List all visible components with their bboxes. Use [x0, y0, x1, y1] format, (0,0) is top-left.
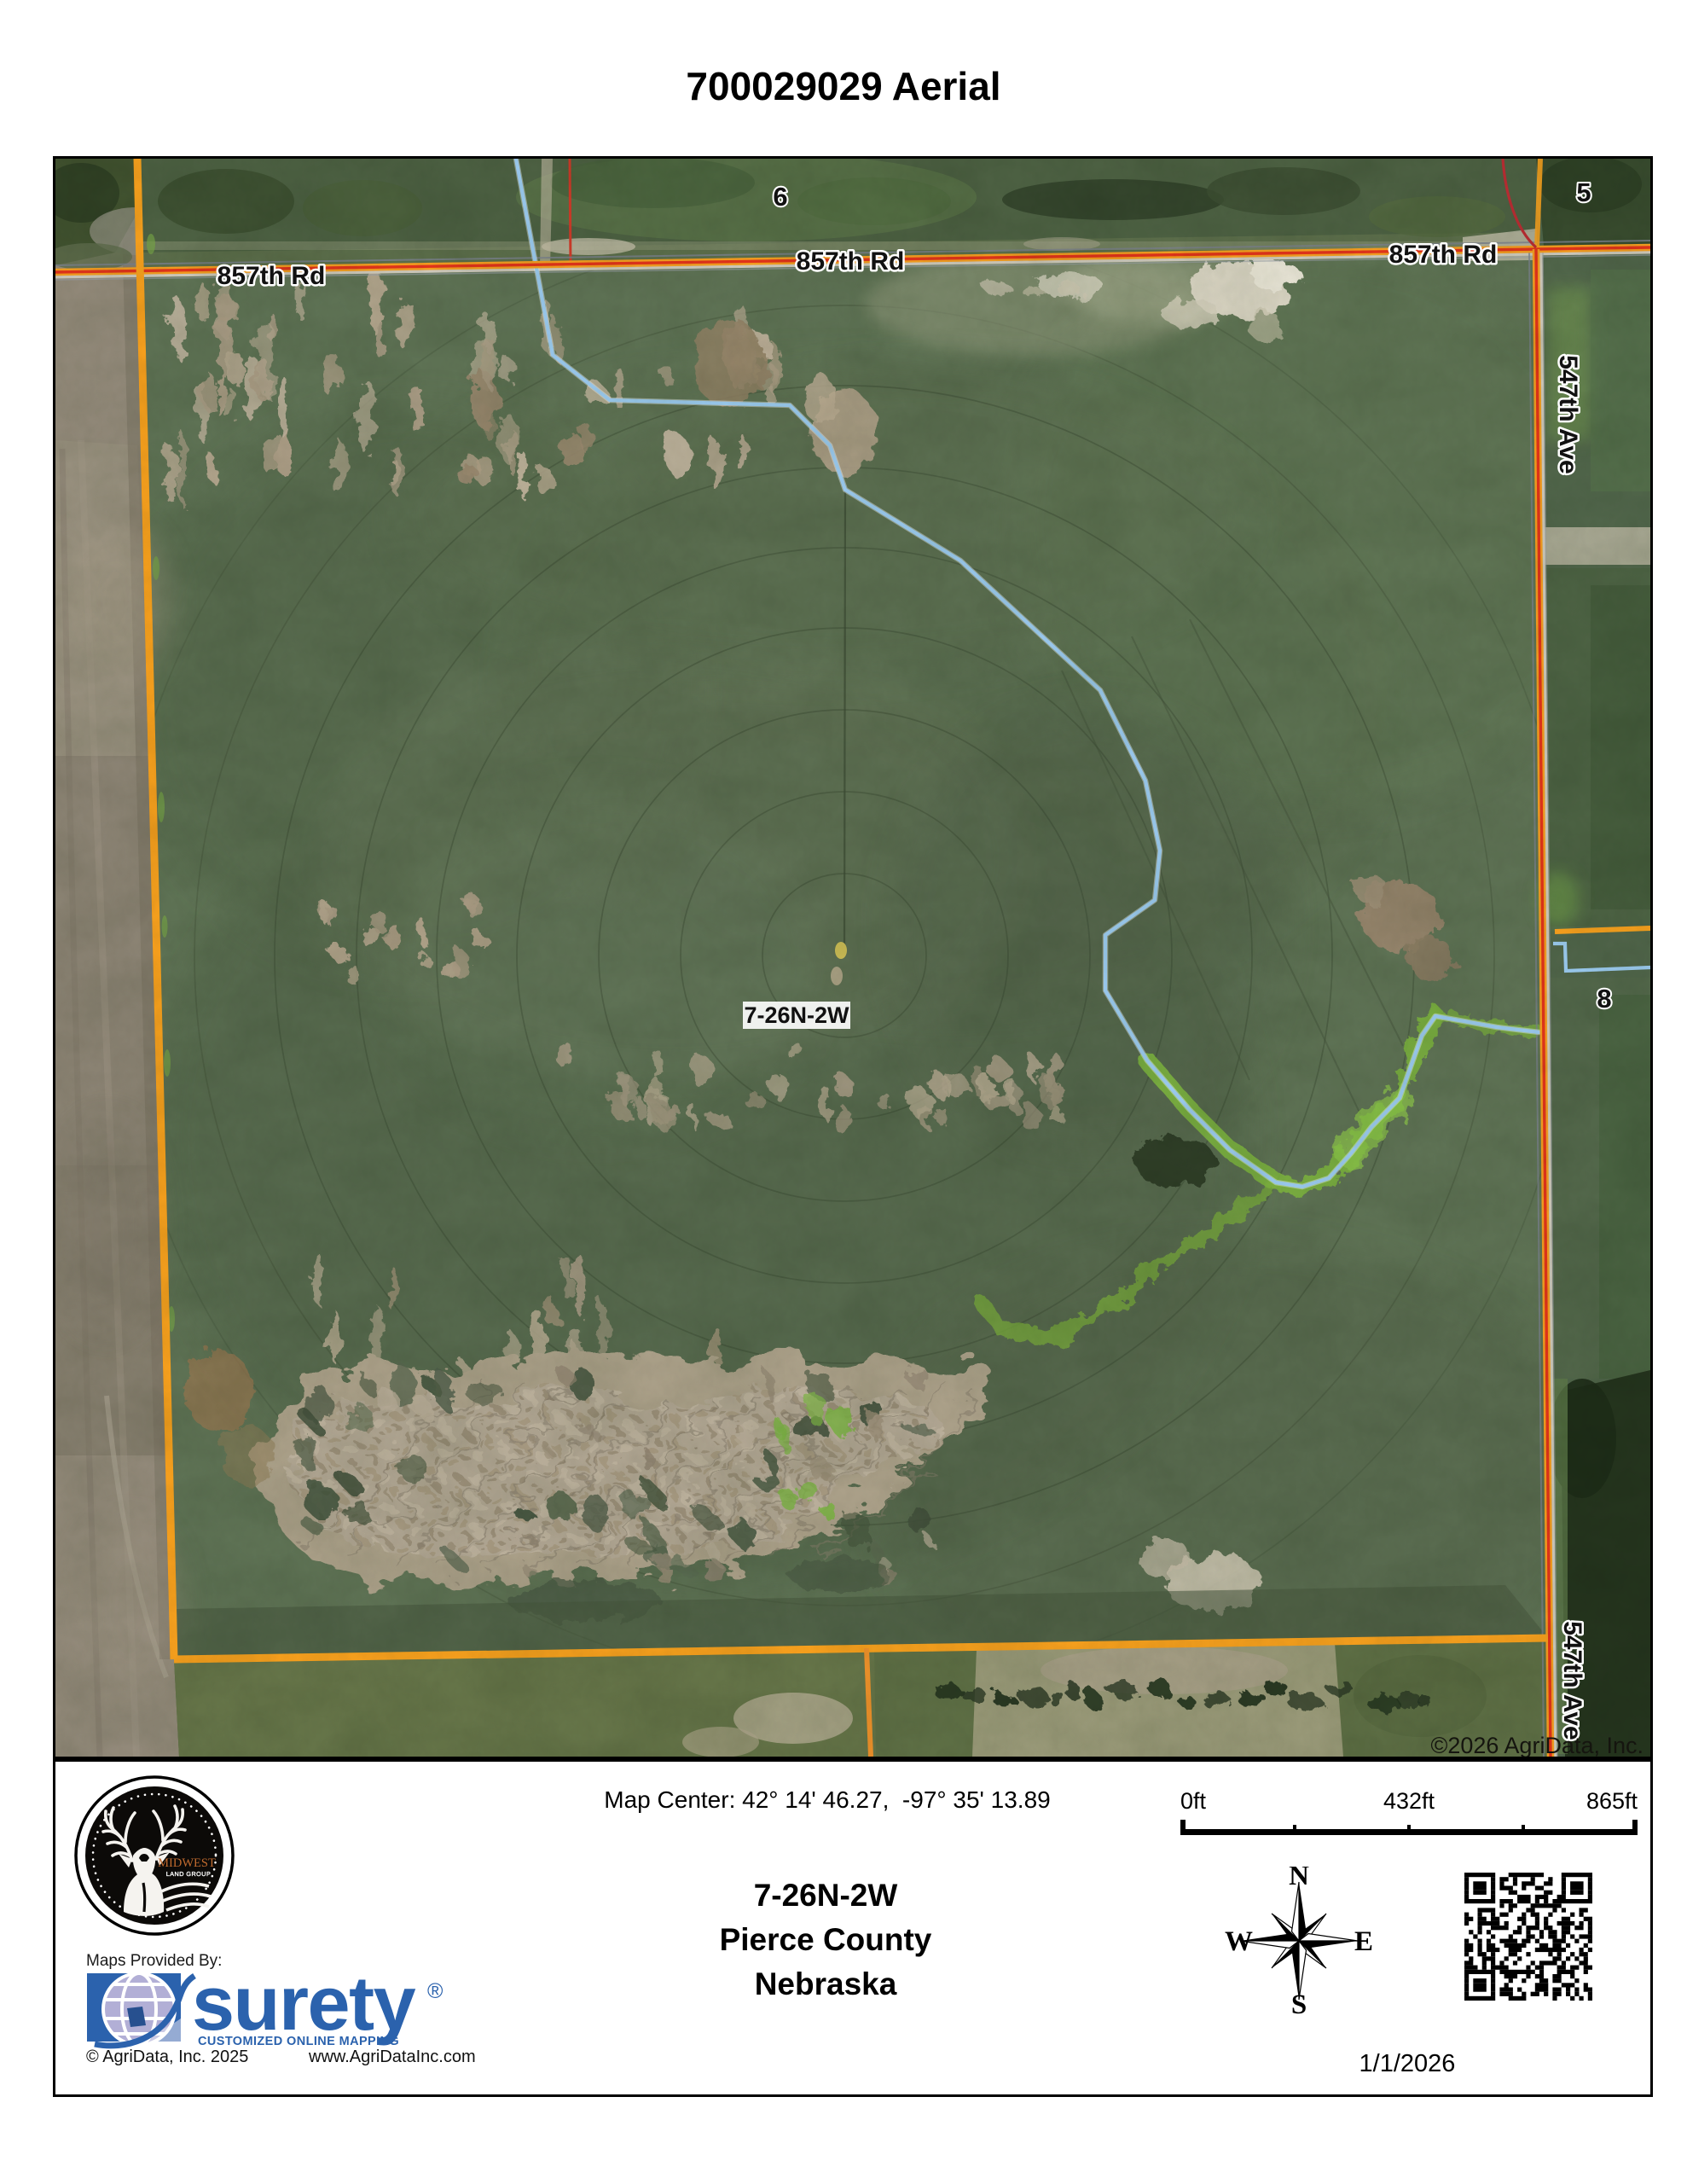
svg-text:547th Ave: 547th Ave [1558, 1621, 1586, 1740]
svg-text:©2026 AgriData, Inc.: ©2026 AgriData, Inc. [1430, 1733, 1644, 1757]
svg-text:N: N [1289, 1867, 1309, 1891]
svg-text:W: W [1225, 1926, 1253, 1957]
svg-text:857th Rd: 857th Rd [217, 262, 326, 290]
svg-text:6: 6 [773, 182, 787, 212]
svg-text:5: 5 [1576, 177, 1591, 207]
svg-text:0ft: 0ft [1180, 1788, 1207, 1814]
svg-text:857th Rd: 857th Rd [797, 247, 905, 276]
svg-text:®: ® [427, 1979, 443, 2003]
svg-text:857th Rd: 857th Rd [1389, 241, 1498, 269]
svg-text:547th Ave: 547th Ave [1554, 355, 1582, 474]
svg-text:432ft: 432ft [1383, 1788, 1435, 1814]
svg-text:CUSTOMIZED ONLINE MAPPING: CUSTOMIZED ONLINE MAPPING [198, 2035, 399, 2048]
svg-text:E: E [1354, 1926, 1373, 1957]
svg-text:865ft: 865ft [1586, 1788, 1638, 1814]
svg-text:S: S [1291, 1989, 1307, 2016]
svg-text:8: 8 [1597, 984, 1611, 1014]
svg-text:7-26N-2W: 7-26N-2W [744, 1002, 849, 1028]
svg-text:MIDWEST: MIDWEST [158, 1856, 216, 1870]
svg-text:LAND GROUP: LAND GROUP [166, 1870, 212, 1878]
